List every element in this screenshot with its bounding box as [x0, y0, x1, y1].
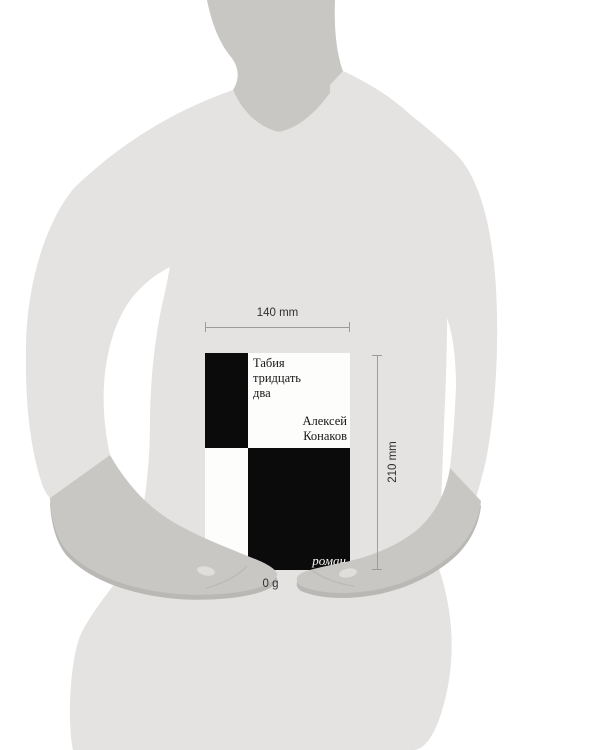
height-dimension-line — [377, 355, 378, 570]
left-forearm-hand — [50, 455, 277, 595]
width-dimension-label: 140 mm — [205, 306, 350, 320]
hands-front-layer — [0, 0, 600, 750]
height-dimension-tick-top — [372, 355, 382, 356]
height-dimension-label: 210 mm — [386, 432, 400, 492]
width-dimension-line — [205, 327, 350, 328]
product-size-visualization: Табия тридцать два Алексей Конаков 18+ р… — [0, 0, 600, 750]
width-dimension-tick-left — [205, 322, 206, 332]
width-dimension-tick-right — [349, 322, 350, 332]
height-dimension-tick-bottom — [372, 569, 382, 570]
weight-label: 0 g — [205, 577, 336, 591]
